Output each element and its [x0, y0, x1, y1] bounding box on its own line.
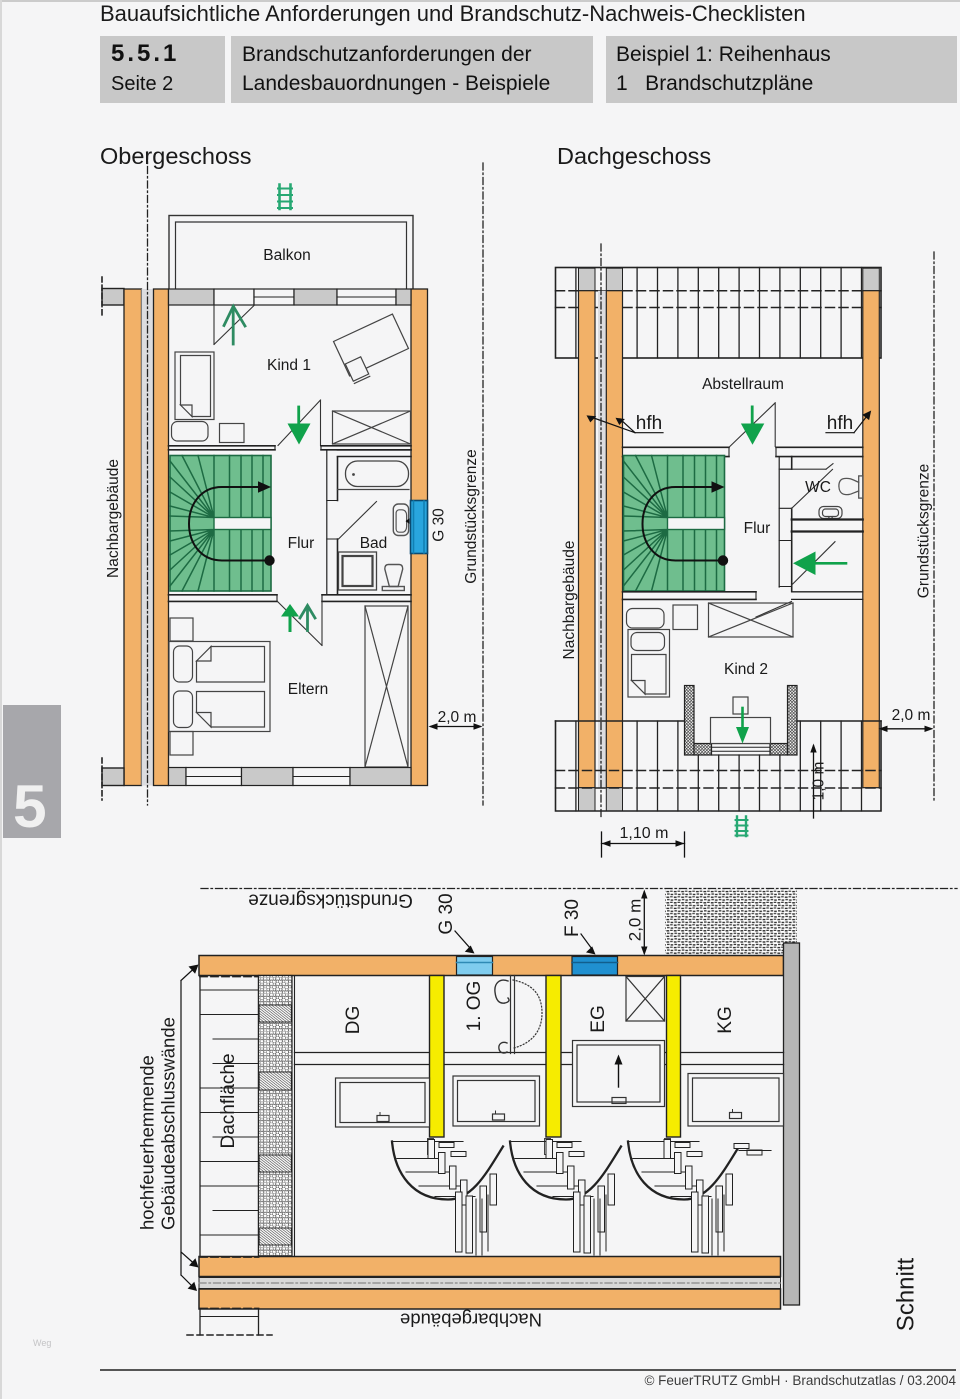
svg-text:2,0 m: 2,0 m: [626, 899, 645, 942]
svg-text:2,0 m: 2,0 m: [892, 707, 931, 724]
svg-text:Grundstücksgrenze: Grundstücksgrenze: [916, 464, 933, 598]
svg-text:G 30: G 30: [436, 893, 457, 934]
svg-text:Gebäudeabschlusswände: Gebäudeabschlusswände: [158, 1017, 179, 1230]
svg-text:1. OG: 1. OG: [464, 981, 485, 1032]
svg-text:hfh: hfh: [636, 413, 662, 434]
svg-text:hfh: hfh: [827, 413, 853, 434]
svg-text:Kind 2: Kind 2: [724, 661, 768, 678]
svg-text:Flur: Flur: [744, 520, 771, 537]
svg-text:2,0 m: 2,0 m: [438, 709, 477, 726]
svg-text:Grundstücksgrenze: Grundstücksgrenze: [463, 449, 480, 583]
svg-text:F 30: F 30: [562, 899, 583, 937]
svg-text:Balkon: Balkon: [263, 247, 310, 264]
svg-text:Kind 1: Kind 1: [267, 357, 311, 374]
svg-text:Grundstücksgrenze: Grundstücksgrenze: [248, 890, 413, 911]
svg-text:KG: KG: [715, 1006, 736, 1033]
svg-text:Nachbargebäude: Nachbargebäude: [105, 459, 122, 578]
svg-text:1,0 m: 1,0 m: [811, 762, 828, 801]
svg-text:Nachbargebäude: Nachbargebäude: [561, 541, 578, 660]
svg-text:1,10 m: 1,10 m: [620, 825, 669, 842]
svg-text:Schnitt: Schnitt: [893, 1257, 920, 1331]
svg-text:Nachbargebäude: Nachbargebäude: [400, 1310, 542, 1331]
svg-text:Dachfläche: Dachfläche: [218, 1053, 239, 1148]
svg-text:Abstellraum: Abstellraum: [702, 376, 784, 393]
svg-text:Flur: Flur: [288, 535, 315, 552]
svg-text:G 30: G 30: [431, 508, 448, 542]
svg-text:EG: EG: [588, 1005, 609, 1032]
svg-text:DG: DG: [343, 1006, 364, 1035]
svg-text:WC: WC: [805, 479, 831, 496]
svg-text:Eltern: Eltern: [288, 681, 329, 698]
svg-text:Bad: Bad: [360, 535, 388, 552]
svg-text:hochfeuerhemmende: hochfeuerhemmende: [137, 1055, 158, 1230]
